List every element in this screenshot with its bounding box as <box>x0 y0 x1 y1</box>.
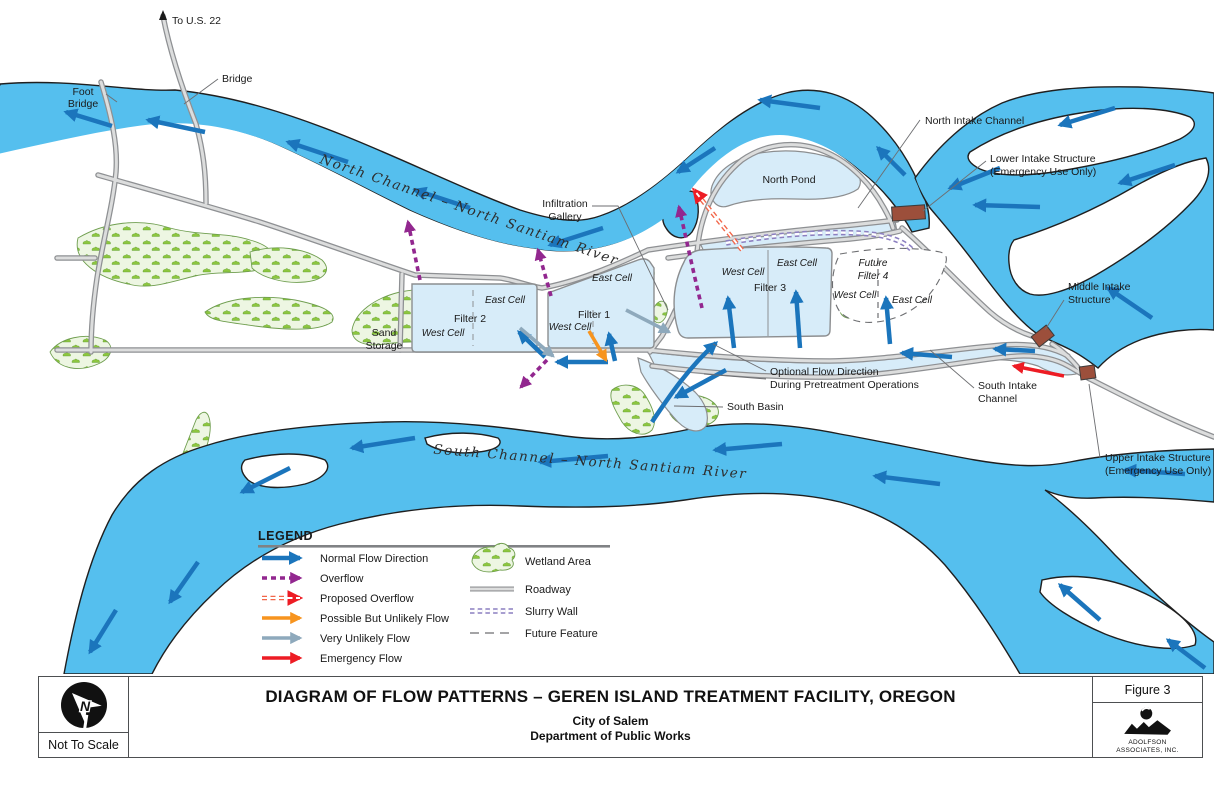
svg-text:N: N <box>79 698 90 714</box>
us22-arrow-tick <box>159 10 167 20</box>
label-future-filter-1: Future <box>859 258 888 269</box>
label-filter2-east-cell: East Cell <box>485 295 526 306</box>
upper-intake-structure <box>1079 365 1096 380</box>
north-arrow-icon: N <box>39 677 128 733</box>
legend-very-unlikely-label: Very Unlikely Flow <box>320 633 410 645</box>
title-box: DIAGRAM OF FLOW PATTERNS – GEREN ISLAND … <box>129 677 1092 757</box>
firm-logo: ADOLFSON ASSOCIATES, INC. <box>1093 703 1202 757</box>
title-block: N Not To Scale DIAGRAM OF FLOW PATTERNS … <box>38 676 1203 758</box>
label-filter4-west-cell: West Cell <box>834 290 877 301</box>
label-north-intake-channel: North Intake Channel <box>925 115 1024 127</box>
firm-name-1: ADOLFSON <box>1116 739 1178 747</box>
scale-note: Not To Scale <box>39 733 128 757</box>
legend-future-feature-label: Future Feature <box>525 628 598 640</box>
label-filter3-east-cell: East Cell <box>777 258 818 269</box>
firm-name-2: ASSOCIATES, INC. <box>1116 747 1178 755</box>
label-south-intake-2: Channel <box>978 393 1017 405</box>
label-lower-intake-2: (Emergency Use Only) <box>990 166 1096 178</box>
legend-wetland-symbol <box>472 543 515 572</box>
label-north-pond: North Pond <box>762 174 815 186</box>
label-infiltration-2: Gallery <box>548 211 582 223</box>
legend-slurry-label: Slurry Wall <box>525 606 578 618</box>
label-filter3-west-cell: West Cell <box>722 267 765 278</box>
label-optional-flow-1: Optional Flow Direction <box>770 366 879 378</box>
scale-box: N Not To Scale <box>39 677 129 757</box>
flow-diagram-map: To U.S. 22 Bridge Foot Bridge North Chan… <box>0 0 1214 674</box>
subtitle-department: Department of Public Works <box>530 729 690 744</box>
diagram-title: DIAGRAM OF FLOW PATTERNS – GEREN ISLAND … <box>265 687 955 707</box>
future-filter4-shape <box>833 248 947 322</box>
legend-wetland-label: Wetland Area <box>525 556 592 568</box>
legend-emergency-label: Emergency Flow <box>320 653 402 665</box>
label-filter2: Filter 2 <box>454 313 486 325</box>
adolfson-logo-icon <box>1115 705 1181 739</box>
label-south-intake-1: South Intake <box>978 380 1037 392</box>
label-optional-flow-2: During Pretreatment Operations <box>770 379 919 391</box>
label-bridge: Bridge <box>222 73 253 85</box>
label-filter2-west-cell: West Cell <box>422 328 465 339</box>
label-infiltration-1: Infiltration <box>542 198 588 210</box>
figure-label: Figure 3 <box>1093 677 1202 703</box>
legend-possible-flow-label: Possible But Unlikely Flow <box>320 613 449 625</box>
label-sand-storage-2: Storage <box>366 340 403 352</box>
subtitle-city: City of Salem <box>572 714 648 729</box>
legend-roadway-label: Roadway <box>525 584 571 596</box>
label-foot-bridge-2: Bridge <box>68 98 99 110</box>
label-filter1: Filter 1 <box>578 309 610 321</box>
label-filter3: Filter 3 <box>754 282 786 294</box>
label-middle-intake-1: Middle Intake <box>1068 281 1131 293</box>
label-lower-intake-1: Lower Intake Structure <box>990 153 1096 165</box>
label-upper-intake-1: Upper Intake Structure <box>1105 452 1211 464</box>
lower-intake-structure <box>892 205 926 221</box>
legend-title: LEGEND <box>258 529 313 543</box>
legend-proposed-overflow-label: Proposed Overflow <box>320 593 414 605</box>
figure-box: Figure 3 ADOLFSON ASSOCIATES, INC. <box>1092 677 1202 757</box>
label-filter1-west-cell: West Cell <box>549 322 592 333</box>
label-upper-intake-2: (Emergency Use Only) <box>1105 465 1211 477</box>
label-foot-bridge-1: Foot <box>72 86 93 98</box>
label-south-basin: South Basin <box>727 401 784 413</box>
legend: LEGEND Normal Flow Direction Overflow Pr… <box>258 529 610 665</box>
label-filter1-east-cell: East Cell <box>592 273 633 284</box>
label-to-us22: To U.S. 22 <box>172 15 221 27</box>
label-middle-intake-2: Structure <box>1068 294 1111 306</box>
label-filter4-east-cell: East Cell <box>892 295 933 306</box>
legend-overflow-label: Overflow <box>320 573 363 585</box>
label-future-filter-2: Filter 4 <box>858 271 889 282</box>
label-sand-storage-1: Sand <box>372 327 397 339</box>
legend-normal-flow-label: Normal Flow Direction <box>320 553 428 565</box>
